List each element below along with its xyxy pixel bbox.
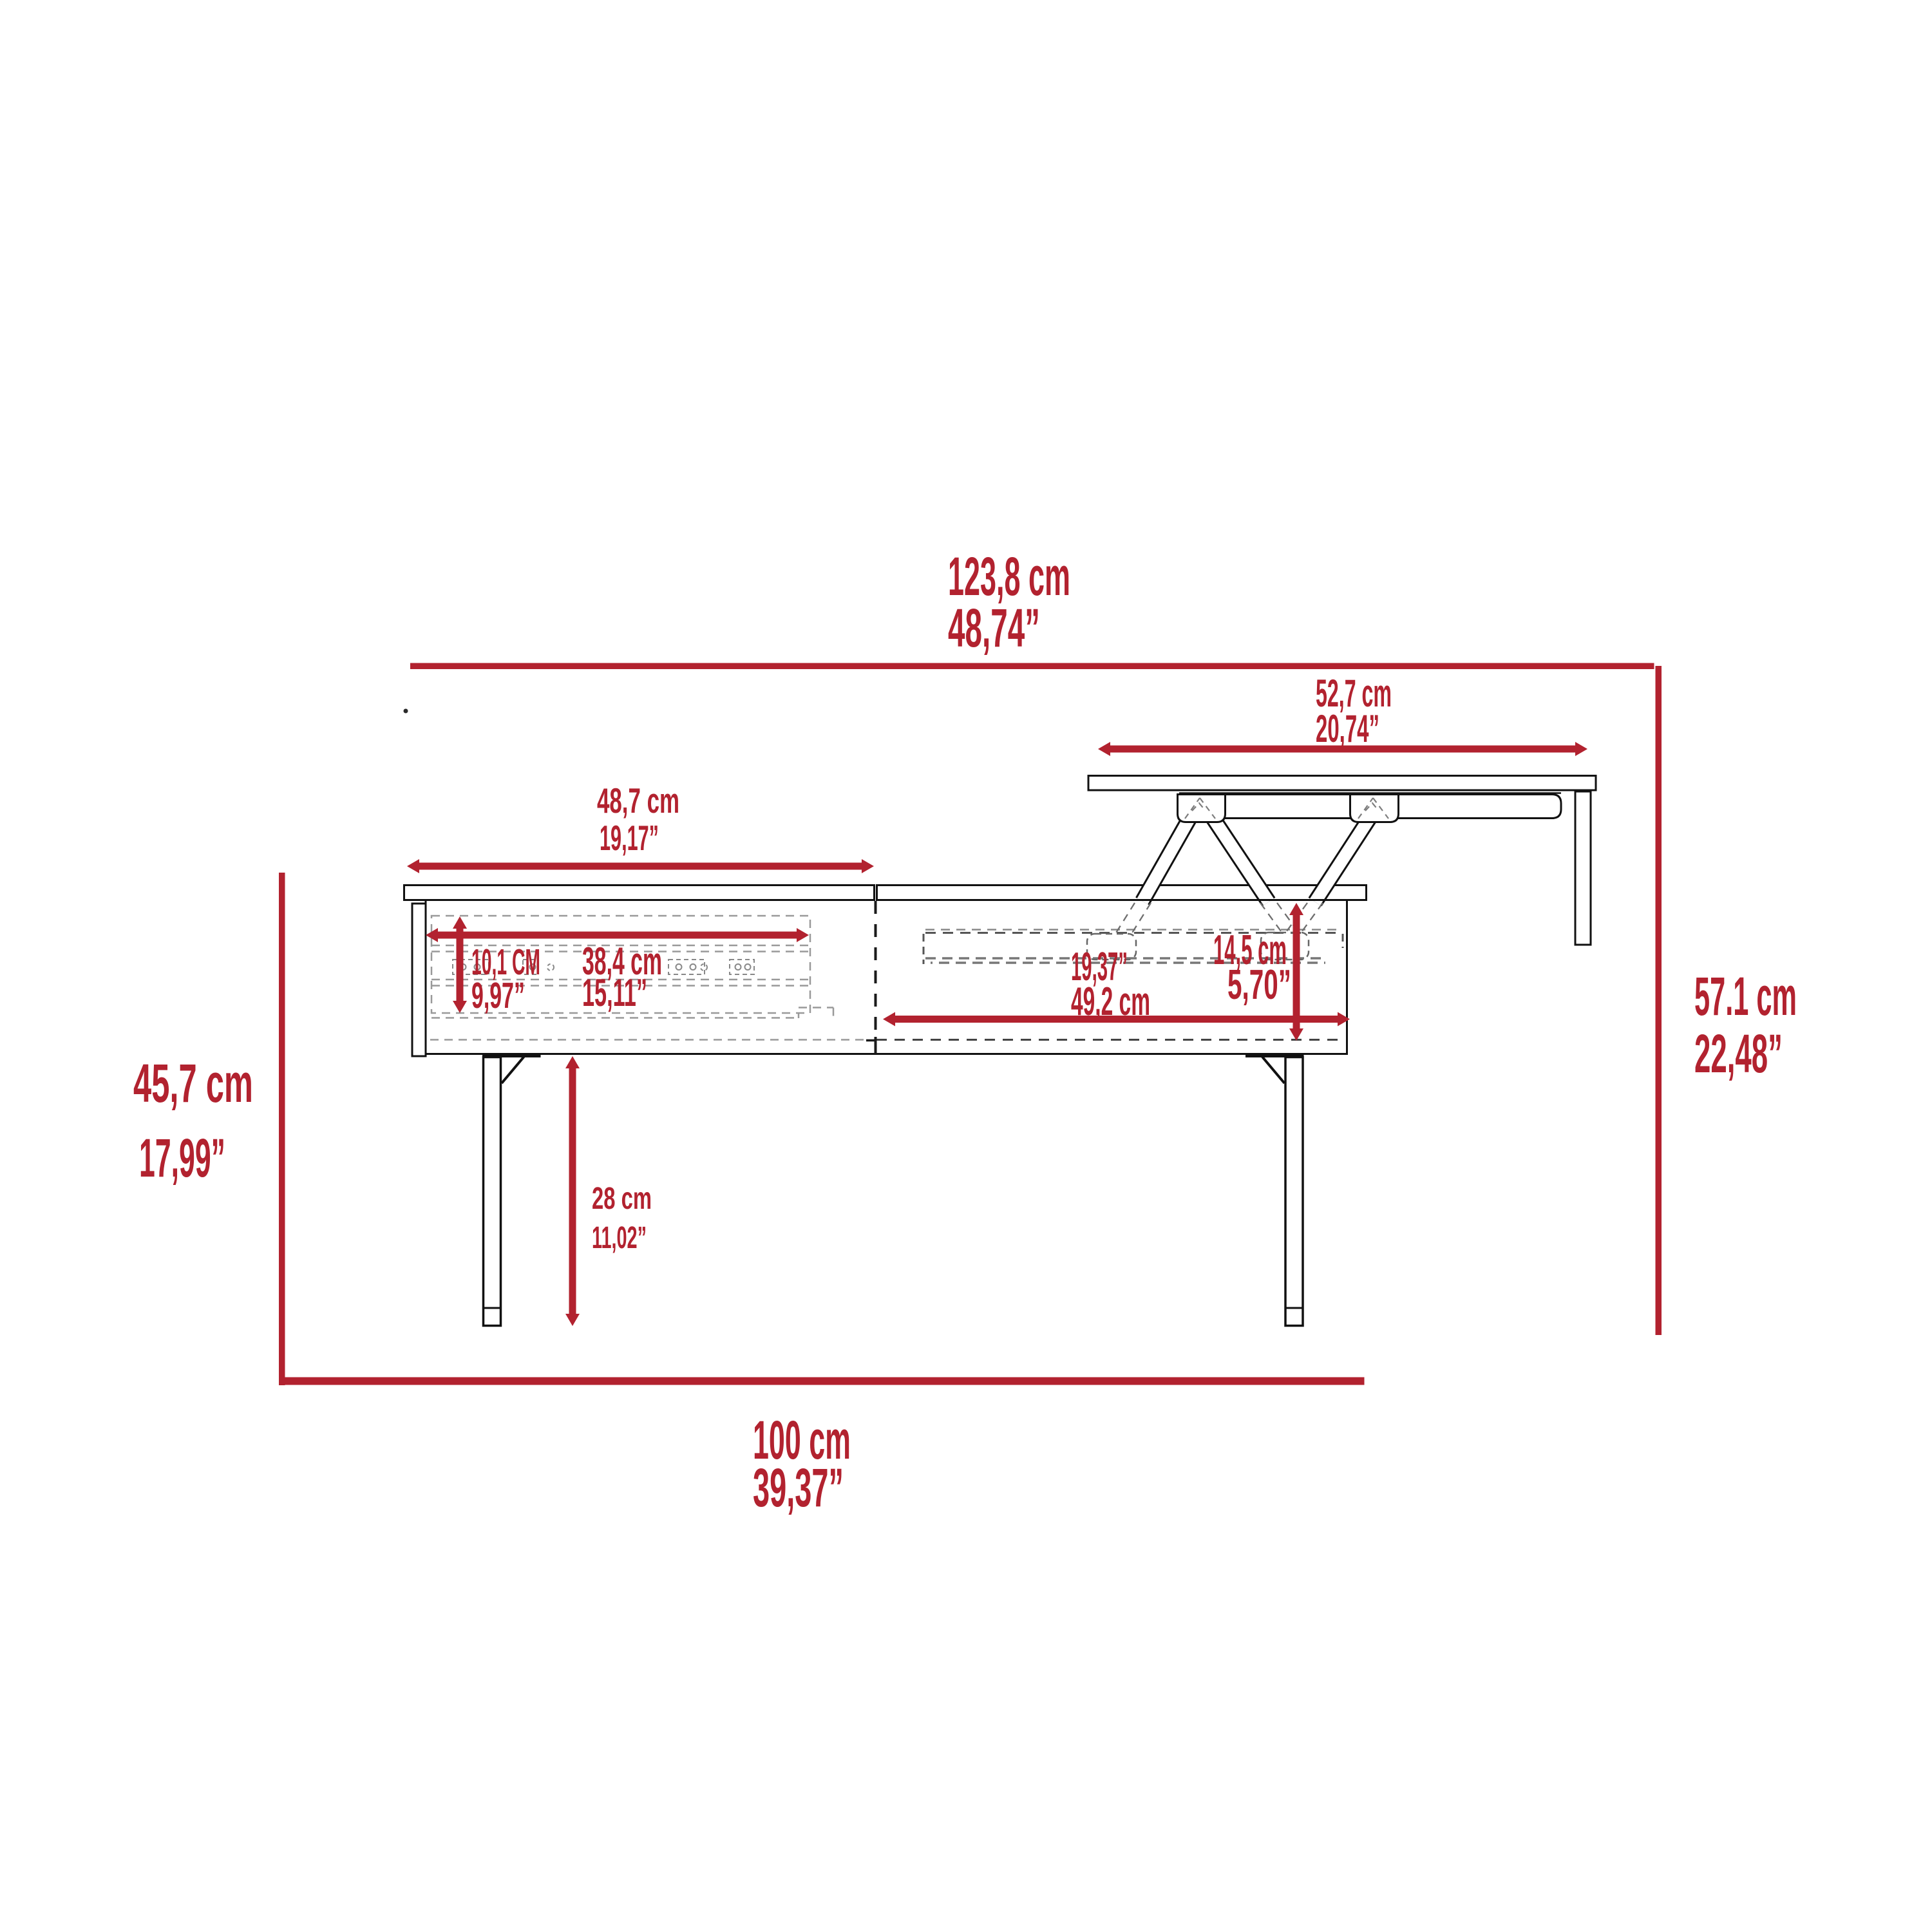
svg-text:57.1 cm: 57.1 cm <box>1694 966 1797 1027</box>
svg-text:9,97”: 9,97” <box>471 975 525 1016</box>
svg-text:5,70”: 5,70” <box>1227 961 1291 1008</box>
svg-text:48,7 cm: 48,7 cm <box>597 781 679 820</box>
svg-text:20,74”: 20,74” <box>1316 707 1379 750</box>
svg-text:11,02”: 11,02” <box>592 1221 647 1255</box>
svg-text:39,37”: 39,37” <box>753 1457 844 1518</box>
svg-text:17,99”: 17,99” <box>139 1128 225 1188</box>
svg-text:49,2 cm: 49,2 cm <box>1071 980 1150 1024</box>
svg-text:45,7 cm: 45,7 cm <box>133 1053 253 1113</box>
svg-text:48,74”: 48,74” <box>948 598 1040 658</box>
svg-text:22,48”: 22,48” <box>1694 1023 1783 1084</box>
svg-text:15,11”: 15,11” <box>582 971 647 1014</box>
svg-text:19,17”: 19,17” <box>600 818 659 858</box>
svg-text:28 cm: 28 cm <box>592 1182 652 1216</box>
